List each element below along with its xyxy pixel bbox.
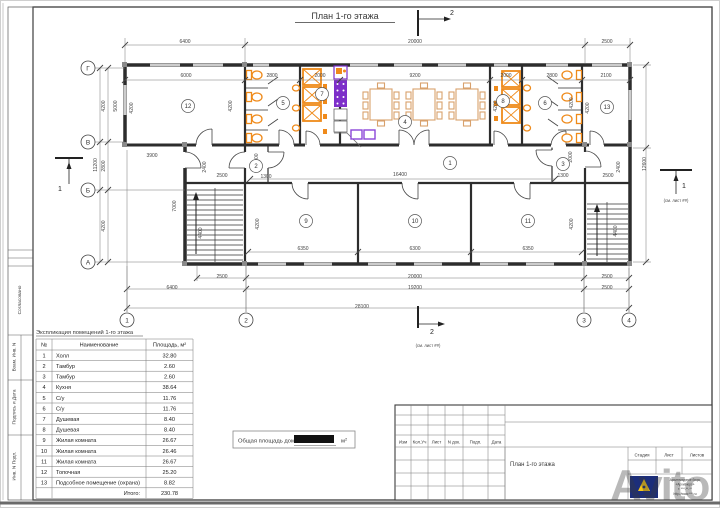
dimension-label: 2800: [546, 73, 557, 79]
cell-room-name: С/у: [56, 406, 65, 412]
dimension-label: 4200: [585, 102, 591, 113]
cell-room-area: 26.67: [163, 459, 177, 465]
revision-header: Лист: [432, 440, 442, 445]
cell-room-name: Кухня: [56, 385, 71, 391]
stage-header: Листов: [690, 453, 705, 458]
cell-room-area: 26.46: [163, 449, 177, 455]
dimension-label: 2400: [202, 161, 208, 172]
cell-room-name: С/у: [56, 396, 65, 402]
dimension-label: 4200: [569, 97, 575, 108]
cell-room-area: 25.20: [163, 470, 177, 476]
drawing-sheet: СогласованоВзам. Инв. NПодпись и ДатаИнв…: [0, 0, 720, 508]
cell-room-name: Жилая комната: [56, 438, 97, 444]
dimension-label: 3900: [146, 153, 157, 159]
dimension-label: 2500: [601, 39, 612, 45]
dimension-label: 2500: [602, 173, 613, 179]
cell-room-num: 13: [41, 481, 47, 487]
col-header-area: Площадь, м²: [153, 343, 186, 349]
dimension-label: 2000: [314, 73, 325, 79]
dimension-label: 2500: [216, 173, 227, 179]
grid-col-label: 1: [125, 317, 129, 324]
explication-title: Экспликация помещений 1-го этажа: [36, 329, 134, 336]
cell-room-num: 3: [42, 375, 45, 381]
grid-col-label: 2: [244, 317, 248, 324]
title-block: ИзмКол.УчЛистN док.Подп.ДатаСтадияЛистЛи…: [395, 405, 712, 500]
cell-room-name: Душевая: [56, 417, 79, 423]
dimension-label: 6400: [166, 285, 177, 291]
col-header-num: №: [41, 343, 47, 349]
dimension-label: 5000: [113, 100, 119, 111]
total-area-label: Общая площадь дома: [238, 439, 299, 445]
cell-room-num: 11: [41, 459, 47, 465]
section-mark-number: 1: [58, 186, 62, 193]
section-mark-number: 2: [450, 10, 454, 17]
dimension-label: 20000: [408, 274, 422, 280]
dimension-label: 11200: [93, 158, 99, 172]
dimension-label: 6300: [409, 246, 420, 252]
dimension-label: 4200: [228, 100, 234, 111]
cell-room-num: 10: [41, 449, 47, 455]
cell-room-name: Холл: [56, 353, 69, 359]
dimension-label: 2000: [500, 73, 511, 79]
company-line: http://www.***.ru: [673, 492, 696, 496]
cell-room-area: 2.60: [164, 364, 175, 370]
cell-room-num: 8: [42, 428, 45, 434]
cell-room-area: 38.64: [163, 385, 177, 391]
side-stamp-label: Взам. Инв. N: [12, 342, 18, 371]
dimension-label: 2500: [216, 274, 227, 280]
dimension-label: 2800: [101, 160, 107, 171]
see-sheet-note: (см. лист ##): [664, 198, 689, 203]
cell-room-name: Жилая комната: [56, 449, 97, 455]
cell-room-area: 2.60: [164, 375, 175, 381]
dimension-label: 2500: [601, 274, 612, 280]
dining-tables: [363, 83, 485, 126]
cell-room-num: 1: [42, 353, 45, 359]
side-stamp-label: Подпись и Дата: [12, 389, 18, 424]
revision-header: Дата: [492, 440, 502, 445]
cell-room-area: 11.76: [163, 406, 177, 412]
dimension-label: 6400: [179, 39, 190, 45]
room-number: 11: [525, 219, 532, 225]
dimension-label: 20000: [408, 39, 422, 45]
grid-col-label: 4: [627, 317, 631, 324]
dimension-label: 19200: [408, 285, 422, 291]
cell-room-num: 5: [42, 396, 45, 402]
cell-room-num: 7: [42, 417, 45, 423]
company-logo: ArchiBuro: [630, 476, 658, 498]
page-title: План 1-го этажа: [311, 11, 378, 21]
redacted-value: [294, 435, 334, 443]
dimension-label: 2100: [600, 73, 611, 79]
dimension-label: 12600: [642, 157, 648, 171]
dimension-label: 2500: [601, 285, 612, 291]
company-line: Архитектурное бюро: [670, 478, 701, 482]
cell-room-name: Тамбур: [56, 375, 75, 381]
cell-room-name: Душевая: [56, 428, 79, 434]
total-label: Итого:: [124, 491, 141, 497]
section-mark-number: 1: [682, 183, 686, 190]
dimension-label: 2400: [616, 161, 622, 172]
grid-row-label: В: [86, 139, 90, 146]
section-mark-number: 2: [430, 329, 434, 336]
cell-room-name: Топочная: [56, 470, 80, 476]
revision-header: Кол.Уч: [413, 440, 427, 445]
dimension-label: 4400: [198, 227, 204, 238]
window-right: [627, 90, 633, 120]
cell-room-area: 26.67: [163, 438, 177, 444]
dimension-label: 7000: [172, 200, 178, 211]
revision-header: N док.: [448, 440, 461, 445]
room-number: 12: [185, 104, 192, 110]
side-stamp-label: Согласовано: [17, 285, 23, 314]
grid-col-label: 3: [582, 317, 586, 324]
cell-room-num: 12: [41, 470, 47, 476]
dimension-label: 4200: [569, 218, 575, 229]
company-line: т. ***-**-**: [678, 487, 692, 491]
dimension-label: 1300: [557, 173, 568, 179]
total-value: 230.78: [161, 491, 178, 497]
cell-room-name: Тамбур: [56, 364, 75, 370]
stage-header: Стадия: [635, 453, 651, 458]
cell-room-num: 9: [42, 438, 45, 444]
dimension-label: 6350: [297, 246, 308, 252]
side-stamp-label: Инв. N Подп.: [12, 452, 18, 481]
grid-row-label: Б: [86, 187, 90, 194]
stage-header: Лист: [664, 453, 674, 458]
cell-room-area: 8.40: [164, 417, 175, 423]
dimension-label: 4200: [255, 218, 261, 229]
dimension-label: 4200: [129, 102, 135, 113]
grid-row-label: А: [86, 259, 91, 266]
cell-room-area: 8.40: [164, 428, 175, 434]
dimension-label: 28100: [355, 304, 369, 310]
dimension-label: 4400: [613, 225, 619, 236]
col-header-name: Наименование: [80, 343, 119, 349]
cell-room-area: 8.82: [164, 481, 175, 487]
floor-plan-canvas: СогласованоВзам. Инв. NПодпись и ДатаИнв…: [0, 0, 720, 508]
company-line: «АрхиБюро»: [676, 483, 695, 487]
dimension-label: 4200: [101, 100, 107, 111]
cell-room-area: 11.76: [163, 396, 177, 402]
dimension-label: 2800: [266, 73, 277, 79]
revision-header: Изм: [399, 440, 407, 445]
window-left: [122, 85, 128, 115]
cell-room-num: 2: [42, 364, 45, 370]
cell-room-num: 4: [42, 385, 45, 391]
total-area-box: Общая площадь дома м2: [233, 431, 355, 448]
cell-room-area: 32.80: [163, 353, 177, 359]
room-number: 10: [412, 219, 419, 225]
logo-name: ArchiBuro: [637, 494, 651, 498]
cell-room-num: 6: [42, 406, 45, 412]
cell-room-name: Подсобное помещение (охрана): [56, 481, 140, 487]
see-sheet-note: (см. лист ##): [416, 343, 441, 348]
dimension-label: 1300: [260, 174, 271, 180]
dimension-label: 9200: [409, 73, 420, 79]
cell-room-name: Жилая комната: [56, 459, 97, 465]
dimension-label: 6350: [522, 246, 533, 252]
titleblock-doc-title: План 1-го этажа: [510, 462, 555, 468]
room-number: 13: [604, 105, 611, 111]
dimension-label: 6000: [180, 73, 191, 79]
revision-header: Подп.: [470, 440, 482, 445]
grid-row-label: Г: [86, 65, 90, 72]
dimension-label: 16400: [393, 172, 407, 178]
dimension-label: 4200: [101, 220, 107, 231]
